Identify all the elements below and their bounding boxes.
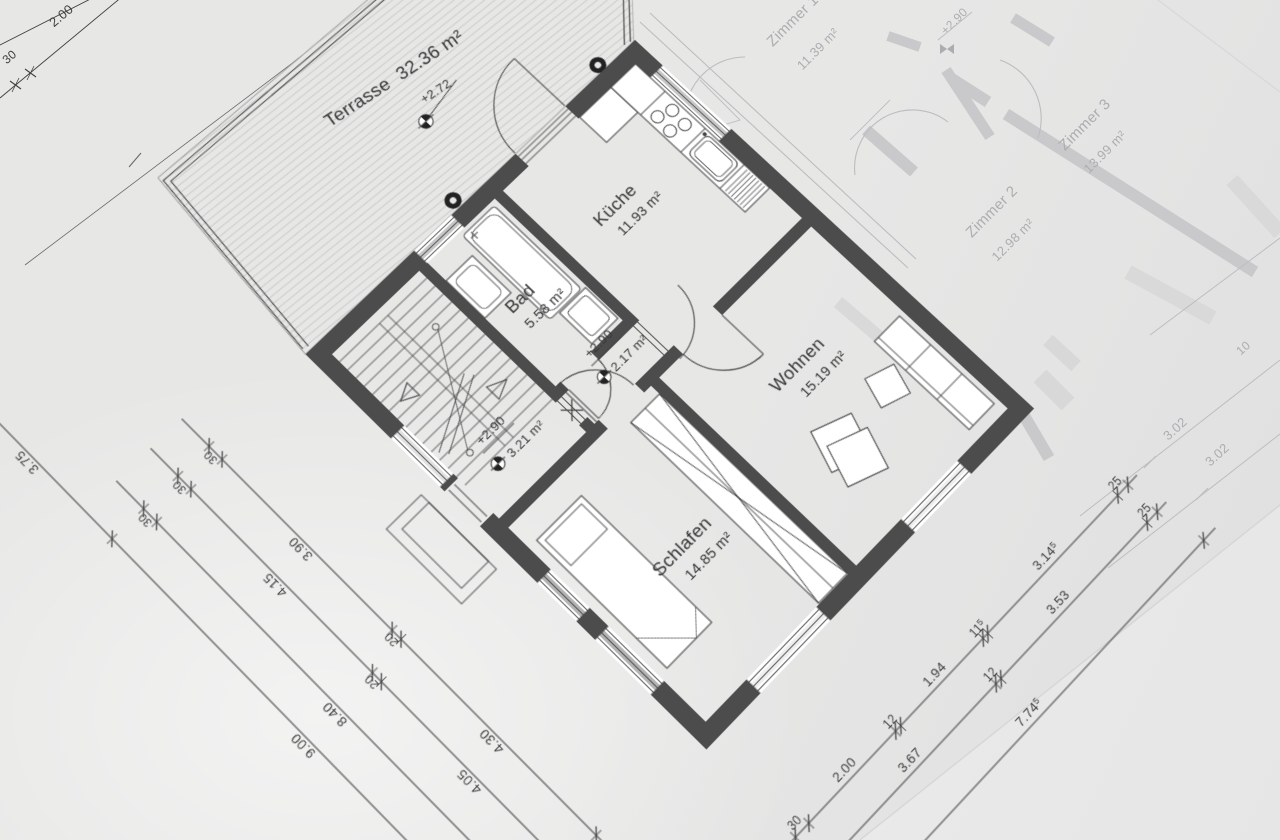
svg-text:9.00: 9.00 — [287, 730, 318, 762]
svg-text:+2.90: +2.90 — [472, 413, 508, 448]
svg-text:2.00: 2.00 — [828, 754, 859, 786]
svg-text:3.21 m²: 3.21 m² — [503, 416, 548, 460]
svg-text:3.90: 3.90 — [285, 534, 316, 564]
svg-text:3.67: 3.67 — [894, 744, 925, 776]
svg-text:20: 20 — [363, 672, 382, 691]
svg-text:3.75: 3.75 — [12, 448, 42, 478]
svg-text:3.145: 3.145 — [1029, 539, 1063, 573]
svg-text:115: 115 — [965, 616, 989, 640]
svg-text:4.05: 4.05 — [453, 766, 484, 798]
svg-text:1.94: 1.94 — [919, 658, 950, 689]
svg-text:4.15: 4.15 — [260, 570, 291, 601]
svg-text:4.30: 4.30 — [476, 726, 507, 758]
svg-text:8.40: 8.40 — [319, 699, 350, 731]
svg-text:3.53: 3.53 — [1042, 587, 1072, 618]
svg-text:7.745: 7.745 — [1011, 695, 1045, 730]
svg-text:20: 20 — [382, 629, 401, 648]
